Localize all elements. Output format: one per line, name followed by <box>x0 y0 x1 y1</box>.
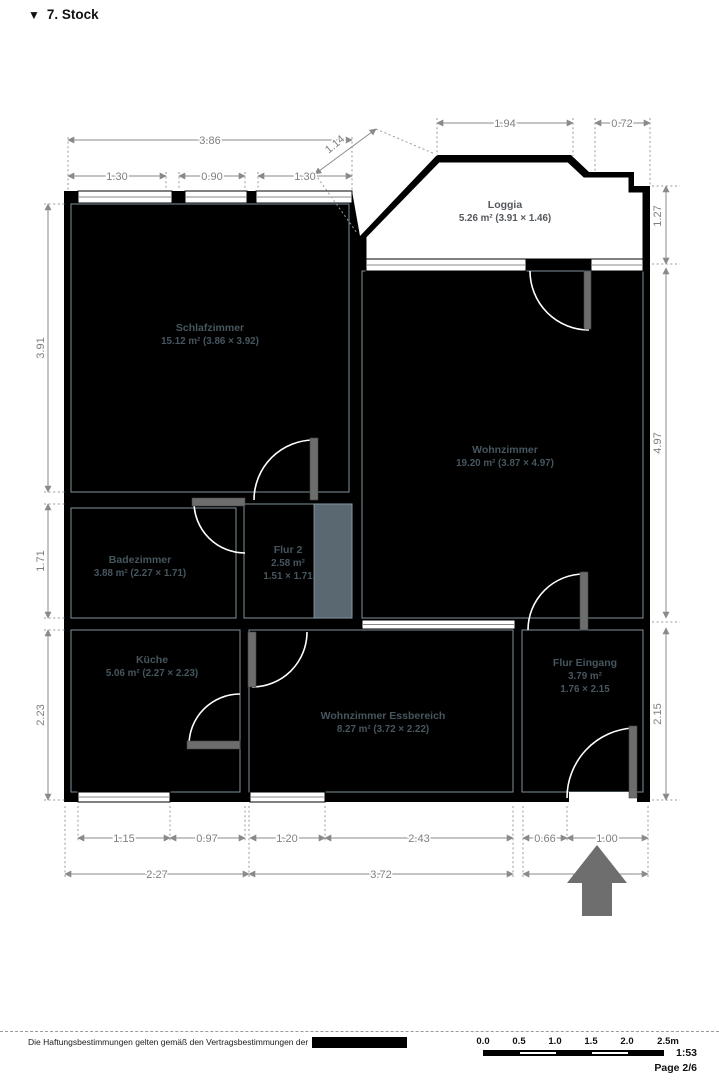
dimension-label: 1.30 <box>294 171 315 183</box>
room-details-schlafzimmer: 15.12 m² (3.86 × 3.92) <box>161 336 259 347</box>
dimension-label: 3.86 <box>199 135 220 147</box>
door-leaf-kueche <box>187 741 240 749</box>
dimension-label: 1.94 <box>494 118 515 130</box>
scalebar-label: 0.5 <box>512 1036 525 1047</box>
room-name-flur-eingang: Flur Eingang <box>553 657 617 669</box>
dimension-label: 3.91 <box>35 337 47 358</box>
floor-title: 7. Stock <box>47 7 99 22</box>
disclaimer-text: Die Haftungsbestimmungen gelten gemäß de… <box>28 1037 407 1048</box>
entrance-door-opening <box>569 792 637 802</box>
dimension-label: 2.43 <box>408 833 429 845</box>
window-schlafzimmer-1 <box>78 191 172 203</box>
door-leaf-badezimmer <box>192 498 245 506</box>
room-name-essbereich: Wohnzimmer Essbereich <box>321 710 446 722</box>
redacted-company-name <box>312 1037 407 1048</box>
room-details2-flur-eingang: 1.76 × 2.15 <box>560 684 610 695</box>
scale-ratio: 1:53 <box>676 1047 697 1059</box>
room-details-flur2: 2.58 m² <box>271 558 306 569</box>
floorplan-page: ▼ 7. Stock <box>0 0 719 1080</box>
scalebar-label: 1.0 <box>548 1036 561 1047</box>
scalebar-label: 2.0 <box>620 1036 633 1047</box>
floor-header: ▼ 7. Stock <box>28 7 99 22</box>
room-name-wohnzimmer: Wohnzimmer <box>472 444 538 456</box>
dimension-label: 1.15 <box>113 833 134 845</box>
scalebar-label: 0.0 <box>476 1036 489 1047</box>
scale-bar <box>483 1050 664 1056</box>
triangle-down-icon: ▼ <box>28 9 40 21</box>
door-leaf-wohnzimmer <box>580 572 588 630</box>
dimension-label: 0.97 <box>196 833 217 845</box>
door-leaf-entrance <box>629 726 637 798</box>
window-kueche <box>78 792 170 802</box>
scalebar-label: 2.5m <box>657 1036 679 1047</box>
room-details-kueche: 5.06 m² (2.27 × 2.23) <box>106 668 198 679</box>
north-arrow-icon <box>567 845 627 916</box>
room-name-schlafzimmer: Schlafzimmer <box>176 322 244 334</box>
door-leaf-essbereich <box>248 632 256 687</box>
room-flur-eingang <box>522 630 643 792</box>
dimension-label: 1.71 <box>35 550 47 571</box>
dimension-label: 4.97 <box>652 432 664 453</box>
dimension-label: 3.72 <box>370 869 391 881</box>
flur2-closet <box>314 504 352 618</box>
dimension-label: 1.20 <box>276 833 297 845</box>
room-details-essbereich: 8.27 m² (3.72 × 2.22) <box>337 724 429 735</box>
scale-bar-segment <box>592 1052 628 1054</box>
room-name-loggia: Loggia <box>488 199 523 211</box>
dimension-label: 0.72 <box>611 118 632 130</box>
window-loggia-right <box>591 259 643 271</box>
room-details-loggia: 5.26 m² (3.91 × 1.46) <box>459 213 551 224</box>
door-leaf-loggia <box>584 271 591 329</box>
window-schlafzimmer-3 <box>256 191 352 203</box>
room-details2-flur2: 1.51 × 1.71 <box>263 571 313 582</box>
scale-bar-segment <box>520 1052 556 1054</box>
page-indicator: Page 2/6 <box>654 1062 697 1074</box>
dimension-label: 1.00 <box>596 833 617 845</box>
dimension-label: 2.23 <box>35 704 47 725</box>
dimension-label: 2.27 <box>146 869 167 881</box>
dimension-label: 2.15 <box>652 703 664 724</box>
dimension-label: 1.30 <box>106 171 127 183</box>
floor-plan-drawing: Schlafzimmer 15.12 m² (3.86 × 3.92) Logg… <box>0 0 719 1030</box>
room-name-kueche: Küche <box>136 654 168 666</box>
room-name-badezimmer: Badezimmer <box>109 554 171 566</box>
dimension-label: 0.90 <box>201 171 222 183</box>
footer: Die Haftungsbestimmungen gelten gemäß de… <box>0 1031 719 1080</box>
window-loggia-left <box>366 259 526 271</box>
disclaimer-label: Die Haftungsbestimmungen gelten gemäß de… <box>28 1037 308 1047</box>
room-details-flur-eingang: 3.79 m² <box>568 671 603 682</box>
dimension-label: 1.27 <box>652 205 664 226</box>
room-schlafzimmer <box>71 204 349 492</box>
window-wohnzimmer-essbereich <box>362 620 515 629</box>
room-details-badezimmer: 3.88 m² (2.27 × 1.71) <box>94 568 186 579</box>
scalebar-label: 1.5 <box>584 1036 597 1047</box>
room-details-wohnzimmer: 19.20 m² (3.87 × 4.97) <box>456 458 554 469</box>
window-schlafzimmer-2 <box>185 191 247 203</box>
window-essbereich <box>250 792 325 802</box>
door-leaf-schlafzimmer <box>310 438 318 500</box>
dimension-label: 0.66 <box>534 833 555 845</box>
room-name-flur2: Flur 2 <box>274 544 303 556</box>
